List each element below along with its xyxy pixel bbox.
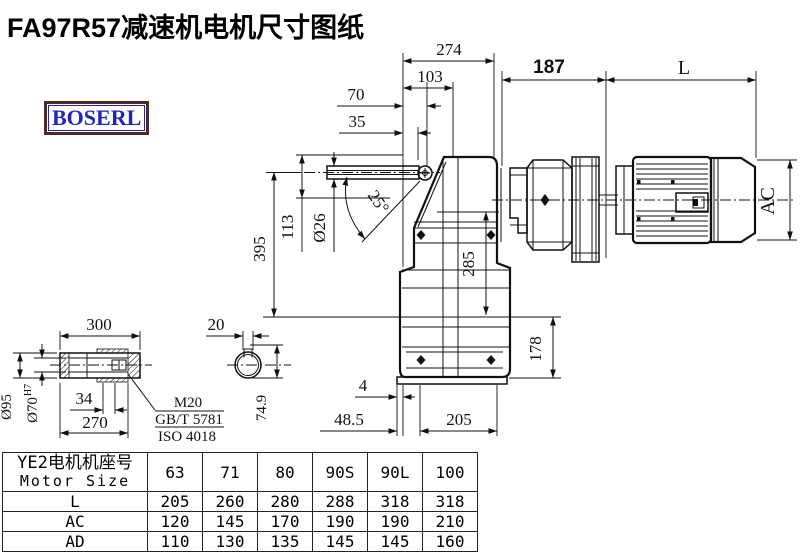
cell-AC-71: 145	[203, 512, 258, 532]
cell-AC-80: 170	[258, 512, 313, 532]
note-iso4018: ISO 4018	[158, 429, 216, 445]
table-row-AC: AC 120 145 170 190 190 210	[3, 512, 478, 532]
cell-AC-90l: 190	[368, 512, 423, 532]
table-header-cn: YE2电机机座号	[3, 454, 147, 473]
dim-dia70-tolerance: H7	[23, 384, 34, 396]
drawing-page: FA97R57减速机电机尺寸图纸 BOSERL	[0, 0, 800, 555]
bottom-dimensions: 4 48.5 205	[320, 376, 497, 436]
note-gbt5781: GB/T 5781	[155, 412, 223, 428]
col-header-100: 100	[423, 453, 478, 492]
dim-34: 34	[76, 389, 94, 408]
table-header-en: Motor Size	[3, 473, 147, 490]
dim-178: 178	[526, 336, 545, 362]
table-row-L: L 205 260 280 288 318 318	[3, 492, 478, 512]
dim-4: 4	[359, 376, 368, 395]
cell-AC-100: 210	[423, 512, 478, 532]
dim-dia95: Ø95	[0, 394, 15, 420]
swing-angle-indicator: 25°	[345, 177, 420, 242]
dim-70: 70	[348, 85, 365, 104]
dim-395: 395	[250, 236, 269, 262]
gearbox-front-view	[397, 157, 510, 384]
cell-L-100: 318	[423, 492, 478, 512]
dim-205: 205	[446, 410, 472, 429]
dim-300: 300	[86, 315, 112, 334]
cell-L-90l: 318	[368, 492, 423, 512]
col-header-63: 63	[148, 453, 203, 492]
dim-113: 113	[278, 215, 297, 240]
cell-L-63: 205	[148, 492, 203, 512]
cell-L-80: 280	[258, 492, 313, 512]
row-label-L: L	[3, 492, 148, 512]
col-header-90s: 90S	[313, 453, 368, 492]
cell-AD-71: 130	[203, 532, 258, 552]
cell-AD-90l: 145	[368, 532, 423, 552]
dim-285: 285	[459, 251, 478, 277]
cell-L-90s: 288	[313, 492, 368, 512]
dim-35: 35	[349, 112, 366, 131]
dim-74-9: 74.9	[254, 395, 270, 421]
dim-103: 103	[417, 67, 443, 86]
table-row-AD: AD 110 130 135 145 145 160	[3, 532, 478, 552]
dim-20: 20	[208, 315, 225, 334]
dim-L: L	[678, 57, 690, 79]
cell-AD-100: 160	[423, 532, 478, 552]
table-header-row: YE2电机机座号 Motor Size 63 71 80 90S 90L 100	[3, 453, 478, 492]
input-shaft-rod	[285, 166, 440, 179]
dim-48-5: 48.5	[334, 410, 364, 429]
hollow-shaft-detail: M20 GB/T 5781 ISO 4018 300 34 270 Ø95	[0, 315, 224, 445]
cell-AC-63: 120	[148, 512, 203, 532]
col-header-90l: 90L	[368, 453, 423, 492]
note-m20: M20	[174, 395, 202, 411]
dim-274: 274	[436, 40, 462, 59]
shaft-cross-section: 20 74.9	[206, 315, 291, 421]
row-label-AD: AD	[3, 532, 148, 552]
dim-25deg: 25°	[364, 187, 393, 217]
top-dimensions: 274 103 70 35 187 L	[337, 40, 756, 267]
dim-dia70: Ø70	[25, 397, 41, 423]
cell-AD-63: 110	[148, 532, 203, 552]
dim-AC: AC	[757, 187, 779, 215]
cell-AD-80: 135	[258, 532, 313, 552]
left-dimensions: 395 113 Ø26 285 178 AC	[250, 152, 797, 378]
dim-187: 187	[533, 57, 565, 78]
dim-dia26: Ø26	[310, 213, 329, 242]
motor-size-table: YE2电机机座号 Motor Size 63 71 80 90S 90L 100…	[2, 452, 478, 552]
table-header-motor-size: YE2电机机座号 Motor Size	[3, 453, 148, 492]
cell-AD-90s: 145	[313, 532, 368, 552]
row-label-AC: AC	[3, 512, 148, 532]
cell-L-71: 260	[203, 492, 258, 512]
dim-270: 270	[82, 413, 108, 432]
cell-AC-90s: 190	[313, 512, 368, 532]
motor-side-view	[492, 157, 796, 262]
col-header-71: 71	[203, 453, 258, 492]
col-header-80: 80	[258, 453, 313, 492]
